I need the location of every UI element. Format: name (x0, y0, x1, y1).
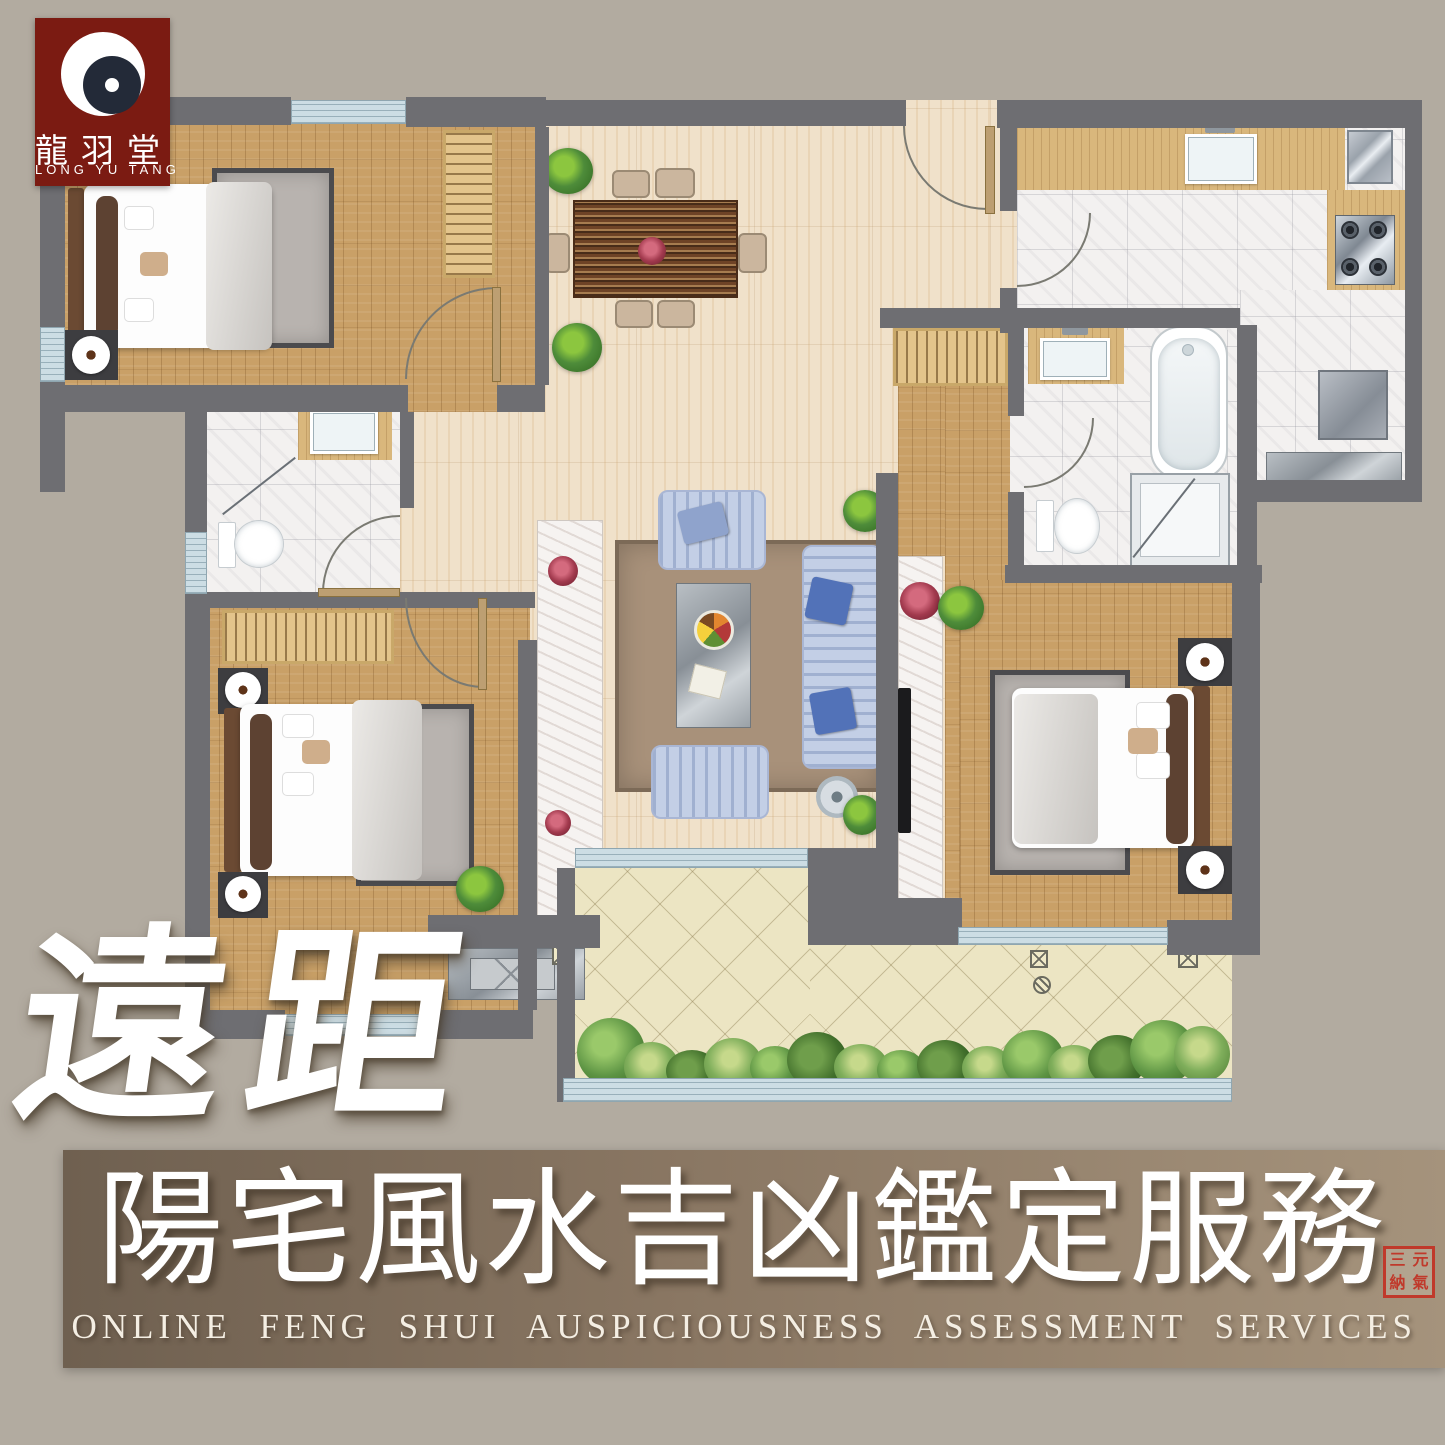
bed-pillow (282, 772, 314, 796)
bathroom1-sink (310, 410, 378, 454)
bathroom2-sink (1040, 338, 1110, 380)
wall (185, 412, 207, 532)
wall (1240, 480, 1422, 502)
bedroom1-wardrobe (443, 130, 495, 278)
bed-pillow-tan (140, 252, 168, 276)
entry-shoe-cabinet (893, 328, 1008, 386)
bedroom2-wardrobe (222, 610, 394, 664)
bed-blanket (206, 182, 272, 350)
wall (1405, 100, 1422, 485)
yinyang-dot (105, 78, 119, 92)
seal-char: 元 (1412, 1253, 1428, 1269)
wall (63, 385, 408, 412)
toilet-bowl (234, 520, 284, 568)
window (291, 100, 406, 124)
flower-planter (900, 582, 940, 620)
sofa-cushion (804, 576, 854, 626)
corridor-floor-upper (898, 386, 945, 556)
bed-pillow (1136, 702, 1170, 729)
flower-planter (545, 810, 571, 836)
bedroom1-door-leaf (492, 287, 501, 382)
wall (876, 473, 898, 903)
burner-icon (1369, 258, 1387, 276)
ottoman (651, 745, 769, 819)
sofa-cushion (809, 687, 858, 736)
washing-machine (1318, 370, 1388, 440)
potted-plant (543, 148, 593, 194)
bed-blanket (352, 700, 422, 880)
banner-subtitle: ONLINE FENG SHUI AUSPICIOUSNESS ASSESSME… (72, 1307, 1418, 1347)
wall (1000, 123, 1017, 211)
dining-chair (655, 168, 695, 198)
burner-icon (1341, 258, 1359, 276)
laundry-counter (1266, 452, 1402, 482)
wall (497, 385, 545, 412)
balcony-window (958, 927, 1168, 945)
wall (880, 308, 1008, 328)
bedroom2-door-leaf (478, 598, 487, 690)
potted-plant (938, 586, 984, 630)
wall (1005, 565, 1262, 583)
wall (406, 97, 546, 127)
feng-shui-poster: 龍羽堂 LONG YU TANG 遠距 陽宅風水吉凶鑑定服務 ONLINE FE… (0, 0, 1445, 1445)
balcony-railing (563, 1078, 1232, 1102)
bed-blanket (1014, 694, 1098, 844)
wall (518, 640, 537, 1010)
kitchen-sink (1185, 134, 1257, 184)
wall (876, 898, 962, 945)
table-lamp-icon (72, 336, 110, 374)
wall (1008, 328, 1024, 416)
flower-planter (548, 556, 578, 586)
burner-icon (1369, 221, 1387, 239)
table-lamp-icon (1186, 643, 1224, 681)
bed-pillow (1136, 752, 1170, 779)
banner-title: 陽宅風水吉凶鑑定服務 (97, 1166, 1387, 1298)
wall (1237, 325, 1257, 580)
bed-pillow (124, 206, 154, 230)
wall (557, 868, 575, 1102)
wall (400, 412, 414, 508)
table-lamp-icon (225, 876, 261, 912)
potted-plant (552, 323, 602, 372)
wall (808, 848, 878, 945)
table-lamp-icon (225, 672, 261, 708)
table-flowers (638, 237, 666, 265)
entry-door-leaf (985, 126, 995, 214)
floor-drain-icon (1033, 976, 1051, 994)
bed-pillow-tan (302, 740, 330, 764)
brand-logo: 龍羽堂 LONG YU TANG (35, 18, 170, 186)
bed-headboard (68, 188, 84, 344)
bed-headboard (1192, 686, 1210, 852)
burner-icon (1341, 221, 1359, 239)
bed-pillow (124, 298, 154, 322)
bathtub-basin (1158, 338, 1220, 470)
window (185, 532, 207, 594)
logo-latin: LONG YU TANG (35, 162, 170, 177)
dining-chair (615, 300, 653, 328)
floor-drain-icon (1030, 950, 1048, 968)
wall (546, 100, 906, 126)
dining-chair (612, 170, 650, 198)
wall (1000, 288, 1017, 333)
tv-screen (898, 688, 911, 833)
bed-pillow (282, 714, 314, 738)
toilet-bowl (1054, 498, 1100, 554)
wall (1232, 583, 1260, 928)
coffee-table (676, 583, 751, 728)
bed-bolster-pillow (250, 714, 272, 870)
wall (40, 382, 65, 492)
bathtub-drain-icon (1182, 344, 1194, 356)
dining-chair (738, 233, 767, 273)
seal-char: 三 (1389, 1253, 1405, 1269)
dragon-yinyang-icon (61, 32, 145, 116)
wall (535, 127, 549, 385)
wall (997, 100, 1412, 128)
fruit-plate (694, 610, 734, 650)
balcony-window (575, 848, 808, 868)
wall (1167, 920, 1260, 955)
dining-chair (657, 300, 695, 328)
table-lamp-icon (1186, 851, 1224, 889)
bed-pillow-tan (1128, 728, 1158, 754)
toilet-tank (1036, 500, 1054, 552)
potted-plant (456, 866, 504, 912)
bathroom1-door-leaf (318, 588, 400, 597)
bush (1174, 1026, 1230, 1082)
seal-char: 氣 (1412, 1276, 1428, 1292)
refrigerator (1347, 130, 1393, 184)
window (40, 327, 65, 382)
bottom-banner: 陽宅風水吉凶鑑定服務 ONLINE FENG SHUI AUSPICIOUSNE… (63, 1150, 1445, 1368)
kitchen-counter-top (1017, 123, 1345, 190)
seal-char: 納 (1389, 1276, 1405, 1292)
wall (1005, 308, 1240, 328)
bed-bolster-pillow (96, 196, 118, 338)
watermark-text: 遠距 (3, 925, 496, 1133)
red-seal-stamp: 三 元 納 氣 (1383, 1246, 1435, 1298)
